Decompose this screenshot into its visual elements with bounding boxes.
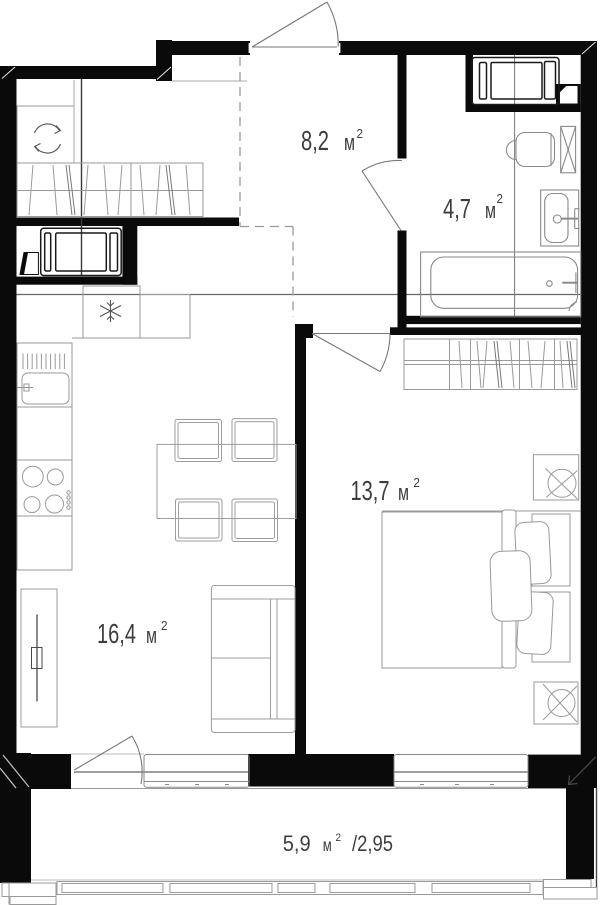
svg-text:м: м <box>344 130 355 155</box>
svg-text:2: 2 <box>161 618 168 633</box>
svg-text:8,2: 8,2 <box>301 125 329 156</box>
svg-text:4,7: 4,7 <box>443 193 471 224</box>
svg-text:м: м <box>485 198 496 223</box>
svg-text:2: 2 <box>497 191 504 206</box>
svg-text:2: 2 <box>336 832 342 844</box>
svg-text:16,4: 16,4 <box>97 618 136 649</box>
svg-text:м: м <box>398 480 409 505</box>
svg-text:5,9: 5,9 <box>283 831 311 856</box>
svg-text:2: 2 <box>357 126 364 141</box>
svg-text:/2,95: /2,95 <box>352 831 393 856</box>
svg-text:2: 2 <box>413 475 420 490</box>
svg-text:м: м <box>146 623 157 648</box>
svg-text:м: м <box>323 835 332 855</box>
svg-text:13,7: 13,7 <box>351 475 390 506</box>
